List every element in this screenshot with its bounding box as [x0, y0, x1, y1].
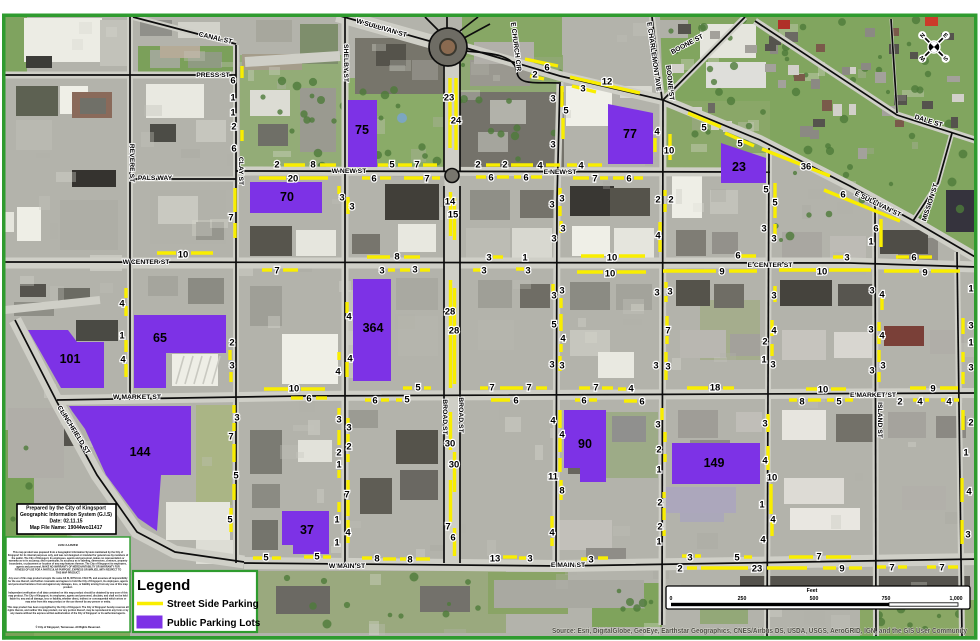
svg-text:6: 6 [544, 63, 549, 74]
svg-text:6: 6 [371, 174, 376, 185]
svg-text:4: 4 [549, 528, 555, 539]
svg-text:CLAY ST: CLAY ST [237, 157, 244, 186]
svg-text:Source: Esri, DigitalGlobe, Ge: Source: Esri, DigitalGlobe, GeoEye, Eart… [552, 626, 968, 635]
svg-text:4: 4 [345, 528, 351, 539]
svg-text:4: 4 [346, 312, 352, 323]
svg-text:3: 3 [559, 194, 564, 205]
svg-text:Legend: Legend [137, 577, 190, 594]
svg-text:6: 6 [488, 173, 493, 184]
svg-text:6: 6 [231, 144, 236, 155]
svg-text:4: 4 [550, 416, 556, 427]
svg-text:PALS WAY: PALS WAY [138, 175, 173, 182]
svg-text:6: 6 [639, 397, 644, 408]
svg-text:1: 1 [968, 338, 974, 349]
svg-text:1: 1 [963, 448, 969, 459]
svg-text:1: 1 [656, 465, 662, 476]
svg-text:5: 5 [415, 383, 421, 394]
svg-text:70: 70 [280, 190, 294, 204]
svg-text:7: 7 [228, 213, 233, 224]
svg-text:1: 1 [656, 537, 662, 548]
svg-text:7: 7 [593, 383, 598, 394]
svg-text:3: 3 [551, 234, 556, 245]
svg-text:7: 7 [424, 174, 429, 185]
svg-text:2: 2 [532, 70, 537, 81]
svg-text:3: 3 [965, 530, 970, 541]
svg-text:E NEW ST: E NEW ST [544, 169, 578, 176]
svg-text:14: 14 [445, 197, 456, 208]
svg-text:3: 3 [486, 253, 491, 264]
svg-text:2: 2 [657, 498, 662, 509]
svg-text:3: 3 [550, 140, 555, 151]
svg-text:1,000: 1,000 [950, 596, 963, 602]
svg-text:4: 4 [335, 367, 341, 378]
svg-text:8: 8 [559, 486, 564, 497]
svg-text:3: 3 [379, 266, 384, 277]
svg-text:THIS MAP PRODUCT.: THIS MAP PRODUCT. [56, 571, 81, 574]
svg-text:3: 3 [655, 420, 660, 431]
svg-text:90: 90 [578, 437, 592, 451]
svg-text:11: 11 [548, 472, 559, 483]
svg-text:3: 3 [336, 415, 341, 426]
svg-text:product.: product. [63, 586, 73, 589]
svg-text:5: 5 [404, 395, 410, 406]
svg-text:149: 149 [704, 456, 725, 470]
svg-text:3: 3 [551, 291, 556, 302]
svg-text:3: 3 [481, 266, 486, 277]
svg-text:1: 1 [868, 237, 874, 248]
svg-text:4: 4 [578, 161, 584, 172]
svg-text:30: 30 [449, 460, 460, 471]
svg-text:3: 3 [559, 286, 564, 297]
svg-text:3: 3 [771, 234, 776, 245]
svg-text:8: 8 [374, 554, 379, 565]
svg-text:65: 65 [153, 331, 167, 345]
svg-text:6: 6 [735, 251, 740, 262]
svg-text:REVERE ST: REVERE ST [128, 144, 135, 183]
svg-text:1: 1 [230, 108, 236, 119]
svg-text:3: 3 [762, 419, 767, 430]
svg-text:4: 4 [559, 430, 565, 441]
svg-text:7: 7 [344, 490, 349, 501]
svg-text:144: 144 [130, 445, 151, 459]
svg-text:E CENTER ST: E CENTER ST [748, 262, 794, 269]
svg-text:23: 23 [732, 160, 746, 174]
svg-text:Street Side Parking: Street Side Parking [167, 599, 259, 610]
svg-text:4: 4 [762, 456, 768, 467]
svg-text:7: 7 [489, 383, 494, 394]
svg-text:4: 4 [917, 397, 923, 408]
svg-text:1: 1 [334, 515, 340, 526]
svg-text:Feet: Feet [807, 588, 818, 594]
svg-text:6: 6 [911, 253, 916, 264]
svg-text:3: 3 [968, 363, 973, 374]
svg-text:© City of Kingsport, Tennessee: © City of Kingsport, Tennessee. All Righ… [36, 625, 101, 629]
svg-text:7: 7 [274, 266, 279, 277]
svg-text:7: 7 [816, 552, 821, 563]
svg-text:75: 75 [355, 123, 369, 137]
svg-text:4: 4 [537, 161, 543, 172]
svg-text:10: 10 [605, 269, 616, 280]
svg-text:10: 10 [817, 267, 828, 278]
svg-text:2: 2 [231, 122, 236, 133]
svg-text:7: 7 [889, 563, 894, 574]
svg-text:18: 18 [710, 383, 721, 394]
svg-text:13: 13 [490, 554, 501, 565]
svg-text:8: 8 [310, 160, 315, 171]
svg-text:3: 3 [770, 360, 775, 371]
svg-text:3: 3 [968, 321, 973, 332]
svg-text:3: 3 [412, 265, 417, 276]
svg-text:4: 4 [560, 334, 566, 345]
svg-text:6: 6 [306, 394, 311, 405]
svg-text:5: 5 [314, 552, 320, 563]
svg-text:9: 9 [922, 268, 927, 279]
svg-text:10: 10 [818, 385, 829, 396]
svg-text:2: 2 [668, 195, 673, 206]
svg-text:10: 10 [607, 253, 618, 264]
svg-text:9: 9 [719, 267, 724, 278]
svg-text:2: 2 [897, 397, 902, 408]
svg-text:10: 10 [767, 473, 778, 484]
svg-text:6: 6 [450, 533, 455, 544]
svg-text:W MAIN ST: W MAIN ST [329, 563, 366, 570]
svg-text:6: 6 [230, 76, 235, 87]
svg-text:BROAD ST: BROAD ST [457, 397, 464, 433]
svg-text:7: 7 [228, 432, 233, 443]
svg-text:Date: 02.11.15: Date: 02.11.15 [49, 519, 82, 525]
svg-text:3: 3 [588, 555, 593, 566]
svg-text:5: 5 [233, 471, 239, 482]
svg-text:any means without the express: any means without the express written au… [10, 612, 125, 615]
svg-text:2: 2 [502, 160, 507, 171]
svg-text:3: 3 [549, 200, 554, 211]
svg-text:3: 3 [549, 360, 554, 371]
svg-text:6: 6 [840, 190, 845, 201]
svg-text:1: 1 [759, 500, 765, 511]
svg-text:7: 7 [592, 174, 597, 185]
svg-text:3: 3 [339, 193, 344, 204]
svg-text:37: 37 [300, 523, 314, 537]
svg-text:4: 4 [966, 487, 972, 498]
svg-text:2: 2 [336, 448, 341, 459]
svg-text:3: 3 [559, 361, 564, 372]
svg-text:0: 0 [670, 596, 673, 602]
svg-text:3: 3 [761, 224, 766, 235]
svg-text:4: 4 [770, 515, 776, 526]
svg-text:10: 10 [664, 146, 675, 157]
svg-text:750: 750 [882, 596, 891, 602]
svg-text:Prepared by the City of Kingsp: Prepared by the City of Kingsport [26, 506, 106, 512]
svg-text:5: 5 [263, 553, 269, 564]
svg-text:5: 5 [563, 106, 569, 117]
svg-text:1: 1 [230, 93, 236, 104]
svg-text:3: 3 [869, 366, 874, 377]
svg-text:7: 7 [445, 522, 450, 533]
svg-text:4: 4 [760, 535, 766, 546]
svg-text:9: 9 [839, 564, 844, 575]
svg-text:9: 9 [930, 384, 935, 395]
svg-text:3: 3 [527, 554, 532, 565]
svg-text:5: 5 [734, 553, 740, 564]
svg-text:5: 5 [763, 185, 769, 196]
svg-text:250: 250 [738, 596, 747, 602]
svg-text:3: 3 [580, 84, 585, 95]
svg-text:3: 3 [346, 423, 351, 434]
svg-text:1: 1 [334, 538, 340, 549]
svg-text:1: 1 [522, 253, 528, 264]
svg-text:3: 3 [667, 287, 672, 298]
svg-text:5: 5 [701, 123, 707, 134]
svg-text:10: 10 [178, 250, 189, 261]
svg-text:4: 4 [655, 231, 661, 242]
svg-text:1: 1 [761, 355, 767, 366]
svg-text:5: 5 [836, 397, 842, 408]
svg-text:1: 1 [336, 460, 342, 471]
svg-text:3: 3 [654, 288, 659, 299]
svg-text:4: 4 [946, 397, 952, 408]
svg-text:7: 7 [665, 326, 670, 337]
svg-text:5: 5 [389, 160, 395, 171]
svg-text:8: 8 [394, 252, 399, 263]
svg-text:3: 3 [349, 202, 354, 213]
svg-text:3: 3 [868, 325, 873, 336]
svg-text:SHELBY ST: SHELBY ST [342, 44, 349, 83]
svg-text:8: 8 [407, 555, 412, 566]
svg-text:4: 4 [347, 354, 353, 365]
svg-text:3: 3 [665, 362, 670, 373]
svg-text:8: 8 [799, 397, 804, 408]
svg-text:may arise from this map produc: may arise from this map product or the u… [25, 600, 111, 603]
svg-text:2: 2 [657, 522, 662, 533]
svg-text:ISLAND ST: ISLAND ST [876, 402, 883, 439]
svg-text:12: 12 [602, 77, 613, 88]
svg-text:E MAIN ST: E MAIN ST [551, 562, 586, 569]
svg-text:PRESS ST: PRESS ST [196, 72, 230, 79]
svg-text:2: 2 [346, 442, 351, 453]
svg-text:1: 1 [968, 284, 974, 295]
svg-text:7: 7 [526, 383, 531, 394]
svg-text:6: 6 [523, 173, 528, 184]
svg-text:4: 4 [879, 290, 885, 301]
svg-text:6: 6 [626, 174, 631, 185]
svg-text:24: 24 [451, 116, 462, 127]
svg-text:5: 5 [737, 139, 743, 150]
svg-text:2: 2 [655, 195, 660, 206]
svg-text:W CENTER ST: W CENTER ST [123, 259, 171, 266]
svg-text:500: 500 [810, 596, 819, 602]
svg-text:5: 5 [772, 198, 778, 209]
svg-text:3: 3 [653, 361, 658, 372]
svg-text:2: 2 [968, 418, 973, 429]
svg-text:2: 2 [677, 564, 682, 575]
svg-text:3: 3 [550, 94, 555, 105]
svg-text:6: 6 [513, 396, 518, 407]
svg-text:Geographic Information System: Geographic Information System (G.I.S) [20, 512, 112, 518]
svg-text:BROAD ST: BROAD ST [441, 399, 448, 435]
svg-text:5: 5 [551, 320, 557, 331]
svg-text:3: 3 [880, 361, 885, 372]
svg-text:4: 4 [120, 355, 126, 366]
svg-text:3: 3 [869, 286, 874, 297]
svg-text:30: 30 [445, 439, 456, 450]
svg-text:1: 1 [119, 331, 125, 342]
svg-text:Public Parking Lots: Public Parking Lots [167, 618, 261, 629]
svg-text:Map File Name: 19044wo11417: Map File Name: 19044wo11417 [30, 525, 103, 531]
svg-text:10: 10 [289, 384, 300, 395]
svg-text:5: 5 [227, 515, 233, 526]
svg-text:2: 2 [656, 445, 661, 456]
svg-text:77: 77 [623, 127, 637, 141]
svg-text:28: 28 [445, 307, 456, 318]
svg-text:3: 3 [844, 253, 849, 264]
svg-text:2: 2 [274, 160, 279, 171]
svg-text:W MARKET ST: W MARKET ST [113, 394, 162, 401]
svg-text:23: 23 [752, 564, 763, 575]
svg-text:4: 4 [879, 331, 885, 342]
svg-text:4: 4 [628, 384, 634, 395]
svg-text:3: 3 [560, 224, 565, 235]
svg-text:28: 28 [449, 326, 460, 337]
svg-text:364: 364 [363, 321, 384, 335]
svg-text:4: 4 [771, 326, 777, 337]
svg-text:101: 101 [60, 352, 81, 366]
svg-text:36: 36 [801, 162, 812, 173]
svg-text:15: 15 [448, 210, 459, 221]
svg-text:7: 7 [414, 160, 419, 171]
svg-text:2: 2 [229, 338, 234, 349]
svg-text:7: 7 [939, 563, 944, 574]
svg-text:3: 3 [229, 361, 234, 372]
svg-text:3: 3 [771, 291, 776, 302]
svg-text:3: 3 [687, 553, 692, 564]
svg-text:23: 23 [444, 93, 455, 104]
svg-text:W NEW ST: W NEW ST [332, 168, 368, 175]
svg-text:3: 3 [234, 413, 239, 424]
svg-text:3: 3 [525, 266, 530, 277]
svg-text:2: 2 [762, 337, 767, 348]
svg-text:DISCLAIMER: DISCLAIMER [57, 543, 78, 547]
svg-text:2: 2 [475, 160, 480, 171]
svg-text:20: 20 [288, 174, 299, 185]
svg-text:E MARKET ST: E MARKET ST [850, 392, 897, 399]
svg-text:4: 4 [119, 299, 125, 310]
svg-text:6: 6 [372, 396, 377, 407]
svg-text:6: 6 [873, 224, 878, 235]
svg-text:6: 6 [581, 396, 586, 407]
svg-text:4: 4 [654, 127, 660, 138]
